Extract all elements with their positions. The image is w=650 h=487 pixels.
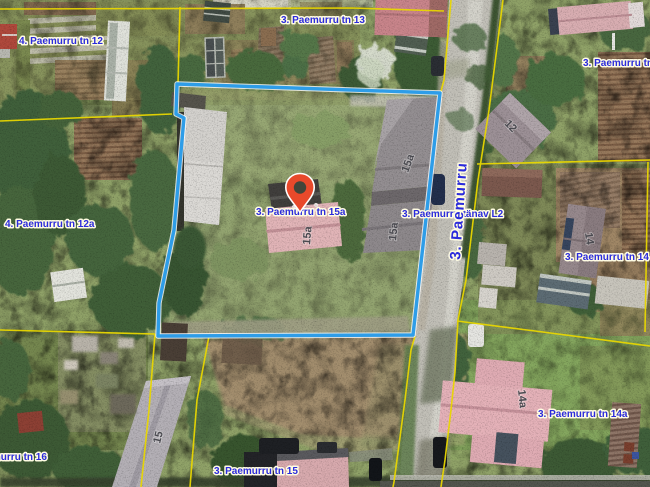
svg-text:4. Paemurru tn 16: 4. Paemurru tn 16 (0, 452, 47, 463)
svg-text:4. Paemurru tn 12: 4. Paemurru tn 12 (19, 36, 103, 47)
svg-text:4. Paemurru tn 12a: 4. Paemurru tn 12a (5, 219, 95, 230)
svg-text:3. Paemurru tn 12: 3. Paemurru tn 12 (583, 58, 650, 69)
svg-text:14a: 14a (515, 389, 529, 409)
svg-text:3. Paemurru tn 14a: 3. Paemurru tn 14a (538, 409, 628, 420)
svg-text:15a: 15a (301, 225, 315, 245)
svg-text:3. Paemurru tn 15: 3. Paemurru tn 15 (214, 466, 298, 477)
svg-text:3. Paemurru tn 14: 3. Paemurru tn 14 (565, 252, 649, 263)
svg-text:3. Paemurru tn 13: 3. Paemurru tn 13 (281, 15, 365, 26)
svg-text:15a: 15a (387, 221, 401, 241)
